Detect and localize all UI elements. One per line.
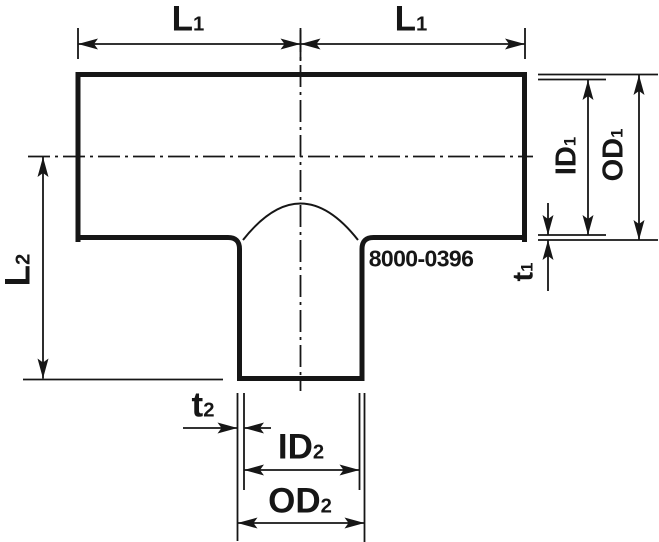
dim-label-od2-text: OD [268, 482, 321, 521]
dim-label-l1-left: L1 [172, 2, 205, 37]
dim-label-t2-sub: 2 [203, 400, 214, 422]
arrowheads [38, 39, 645, 529]
dim-label-id1: ID1 [553, 137, 582, 175]
dimension-lines [43, 44, 639, 523]
dim-label-od1: OD1 [600, 129, 629, 182]
dim-label-id2: ID2 [278, 430, 324, 465]
tee-drawing-svg [0, 0, 659, 542]
dim-label-l1-right-sub: 1 [416, 14, 427, 36]
dim-label-t1: t1 [510, 262, 539, 281]
dim-label-l2-text: L [0, 265, 38, 286]
dim-label-od1-text: OD [598, 138, 630, 182]
dim-label-l2: L2 [1, 254, 36, 287]
dim-label-l1-left-text: L [172, 0, 193, 39]
tee-outline [76, 75, 527, 379]
dim-label-id1-sub: 1 [561, 137, 580, 146]
dim-label-id2-sub: 2 [313, 442, 324, 464]
dim-label-od1-sub: 1 [608, 129, 627, 138]
center-lines [28, 30, 533, 391]
dim-label-id2-text: ID [278, 428, 313, 467]
dim-label-t1-text: t [508, 272, 540, 282]
dim-label-l1-left-sub: 1 [193, 14, 204, 36]
dim-label-l2-sub: 2 [13, 254, 35, 265]
dim-label-od2-sub: 2 [321, 496, 332, 518]
dim-label-l1-right: L1 [395, 2, 428, 37]
dim-label-t1-sub: 1 [518, 262, 537, 271]
dim-label-l1-right-text: L [395, 0, 416, 39]
dim-label-od2: OD2 [268, 484, 332, 519]
dim-label-id1-text: ID [551, 146, 583, 175]
dim-label-t2: t2 [192, 388, 215, 423]
part-number: 8000-0396 [369, 248, 474, 271]
tee-dimensional-drawing: L1 L1 L2 ID1 OD1 t1 t2 ID2 OD2 8000-0396 [0, 0, 659, 542]
dim-label-t2-text: t [192, 386, 204, 425]
